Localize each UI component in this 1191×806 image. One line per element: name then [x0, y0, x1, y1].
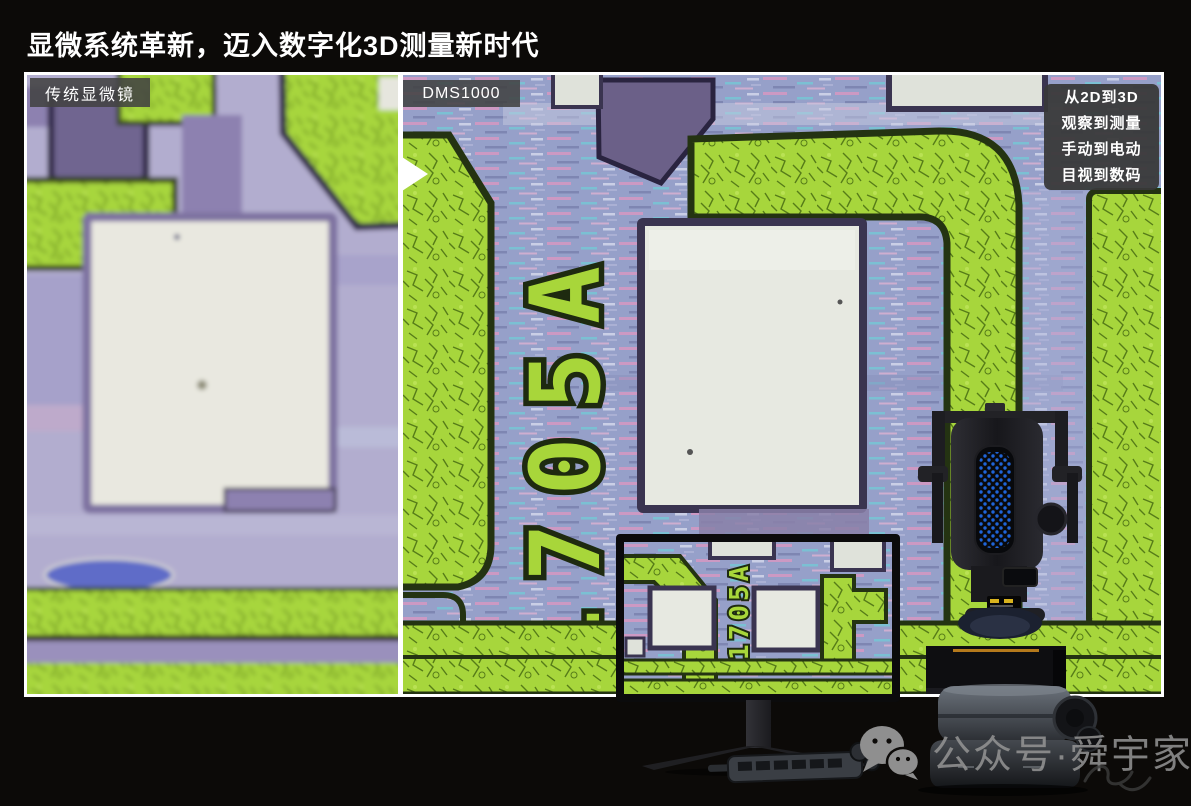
feature-line-4: 目视到数码 [1044, 165, 1159, 187]
monitor-screen: 1705A [624, 542, 892, 694]
label-traditional-microscope: 传统显微镜 [30, 78, 150, 107]
wechat-icon [858, 722, 920, 782]
monitor: 1705A [616, 534, 900, 702]
feature-line-2: 观察到测量 [1044, 113, 1159, 135]
page-title: 显微系统革新，迈入数字化3D测量新时代 [27, 24, 540, 63]
panel-traditional-microscope [27, 75, 398, 694]
feature-line-1: 从2D到3D [1044, 87, 1159, 109]
feature-line-3: 手动到电动 [1044, 139, 1159, 161]
arrow-right-icon [402, 157, 428, 191]
chip-marking-text: 1705A [510, 238, 622, 667]
feature-box: 从2D到3D 观察到测量 手动到电动 目视到数码 [1044, 84, 1159, 190]
chip-marking-inset-text: 1705A [725, 562, 755, 660]
promo-canvas: 显微系统革新，迈入数字化3D测量新时代 [0, 0, 1191, 806]
traditional-micrograph-illustration [27, 75, 398, 694]
signature-scribble [1080, 756, 1155, 798]
label-dms1000: DMS1000 [403, 80, 520, 107]
